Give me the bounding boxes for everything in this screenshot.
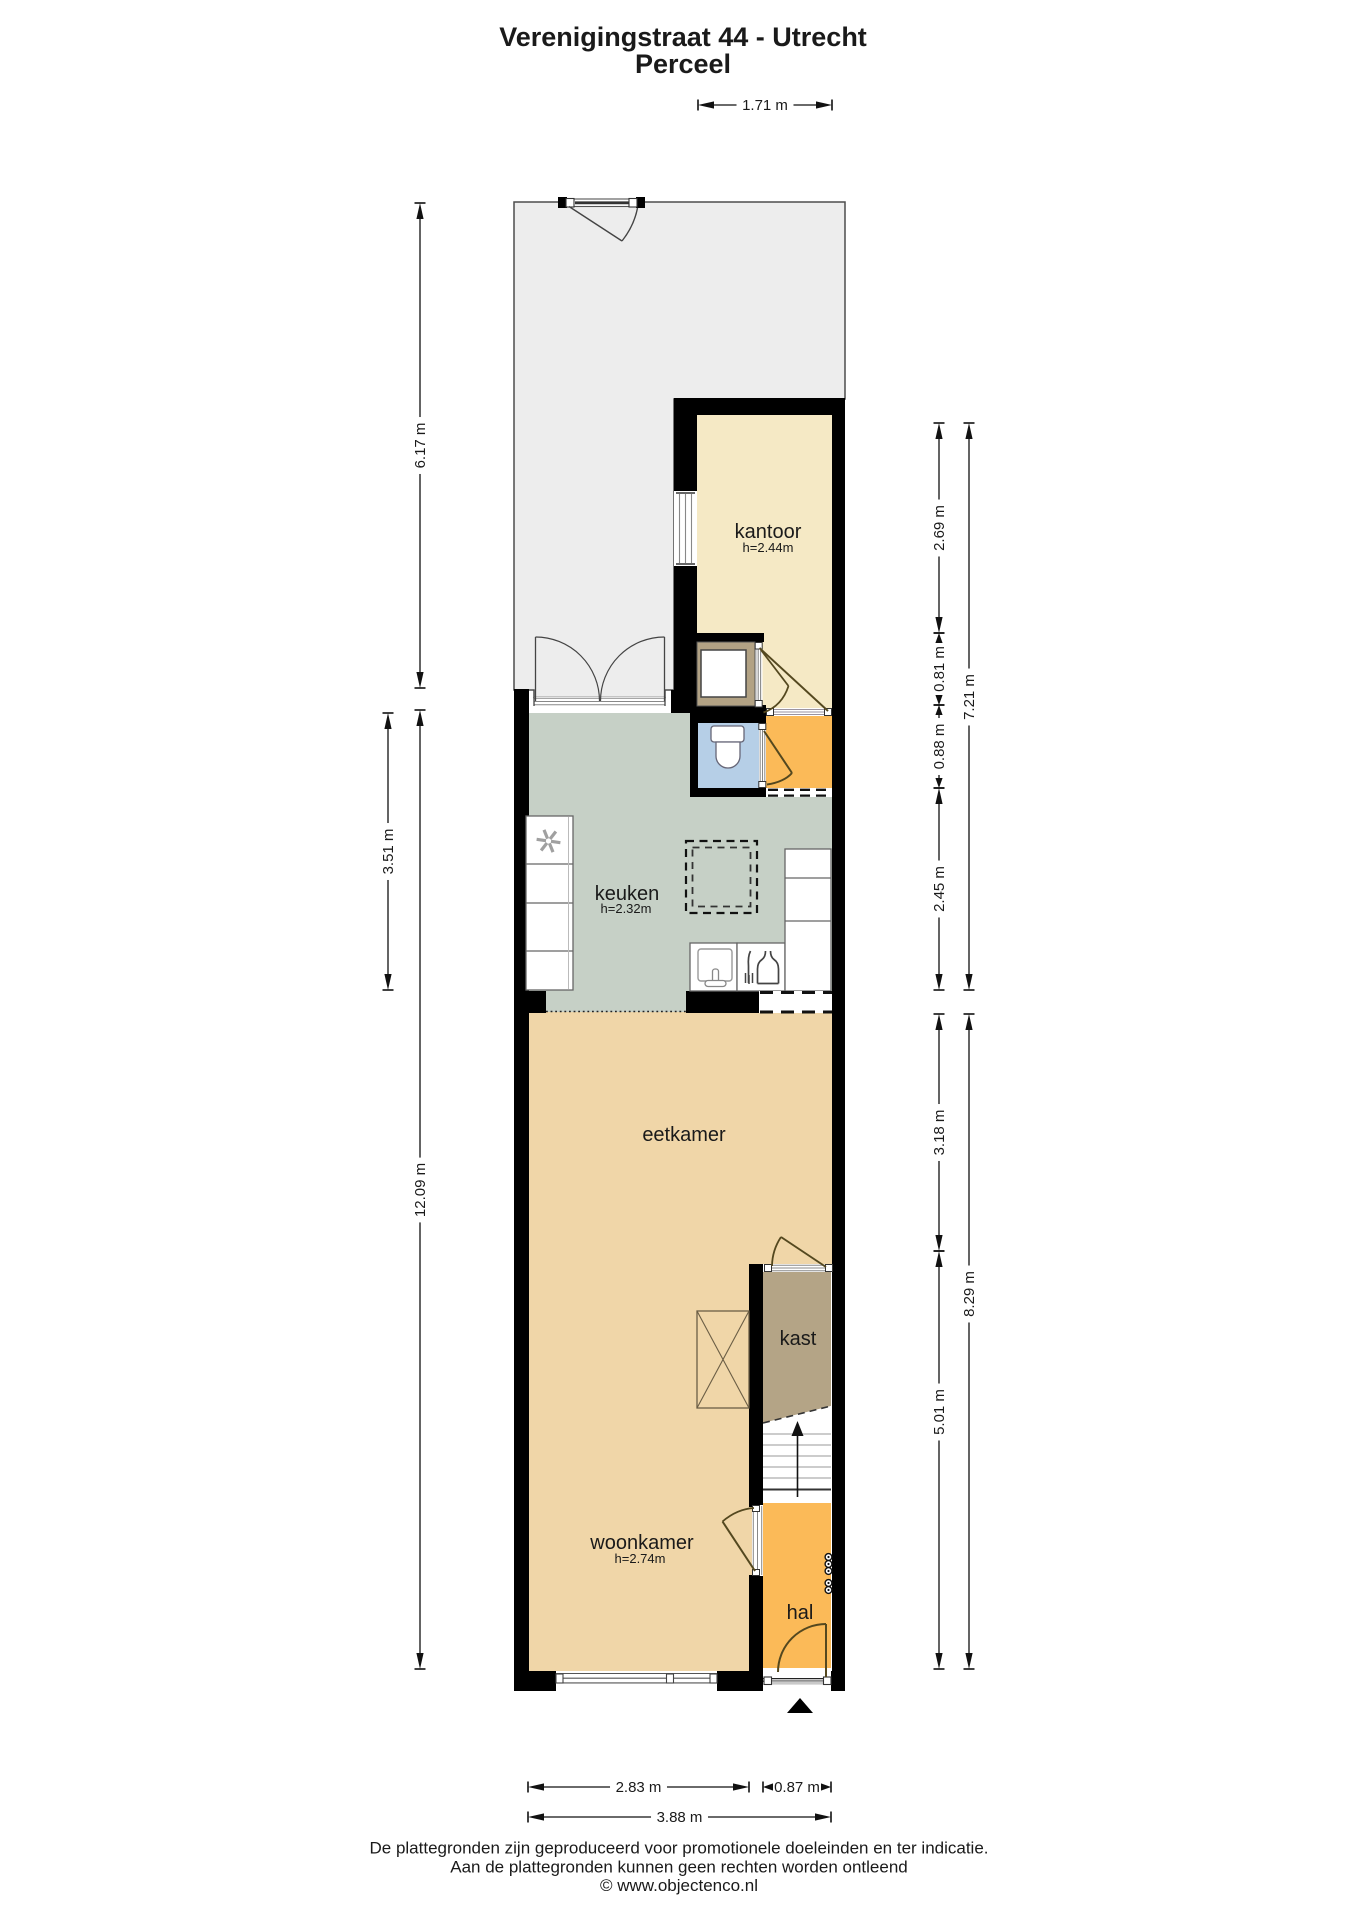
- svg-text:eetkamer: eetkamer: [642, 1124, 726, 1146]
- svg-text:1.71 m: 1.71 m: [742, 97, 788, 114]
- svg-text:hal: hal: [787, 1602, 814, 1624]
- svg-text:0.88 m: 0.88 m: [931, 724, 948, 770]
- svg-text:2.83 m: 2.83 m: [616, 1779, 662, 1796]
- svg-text:© www.objectenco.nl: © www.objectenco.nl: [600, 1876, 758, 1895]
- svg-text:2.45 m: 2.45 m: [931, 866, 948, 912]
- svg-text:h=2.74m: h=2.74m: [615, 1551, 666, 1566]
- svg-text:2.69 m: 2.69 m: [931, 505, 948, 551]
- svg-text:0.87 m: 0.87 m: [774, 1779, 820, 1796]
- svg-text:5.01 m: 5.01 m: [931, 1389, 948, 1435]
- svg-text:8.29 m: 8.29 m: [961, 1271, 978, 1317]
- svg-text:0.81 m: 0.81 m: [931, 646, 948, 692]
- svg-text:7.21 m: 7.21 m: [961, 674, 978, 720]
- svg-text:Aan de plattegronden kunnen ge: Aan de plattegronden kunnen geen rechten…: [450, 1858, 907, 1877]
- svg-text:Verenigingstraat 44 - Utrecht: Verenigingstraat 44 - Utrecht: [499, 22, 867, 52]
- svg-text:kast: kast: [780, 1328, 817, 1350]
- svg-text:12.09 m: 12.09 m: [412, 1163, 429, 1217]
- svg-text:3.18 m: 3.18 m: [931, 1110, 948, 1156]
- svg-text:3.88 m: 3.88 m: [657, 1809, 703, 1826]
- svg-text:h=2.32m: h=2.32m: [601, 901, 652, 916]
- svg-text:6.17 m: 6.17 m: [412, 423, 429, 469]
- svg-text:De plattegronden zijn geproduc: De plattegronden zijn geproduceerd voor …: [369, 1839, 988, 1858]
- svg-text:3.51 m: 3.51 m: [380, 829, 397, 875]
- svg-text:Perceel: Perceel: [635, 49, 731, 79]
- svg-text:h=2.44m: h=2.44m: [743, 540, 794, 555]
